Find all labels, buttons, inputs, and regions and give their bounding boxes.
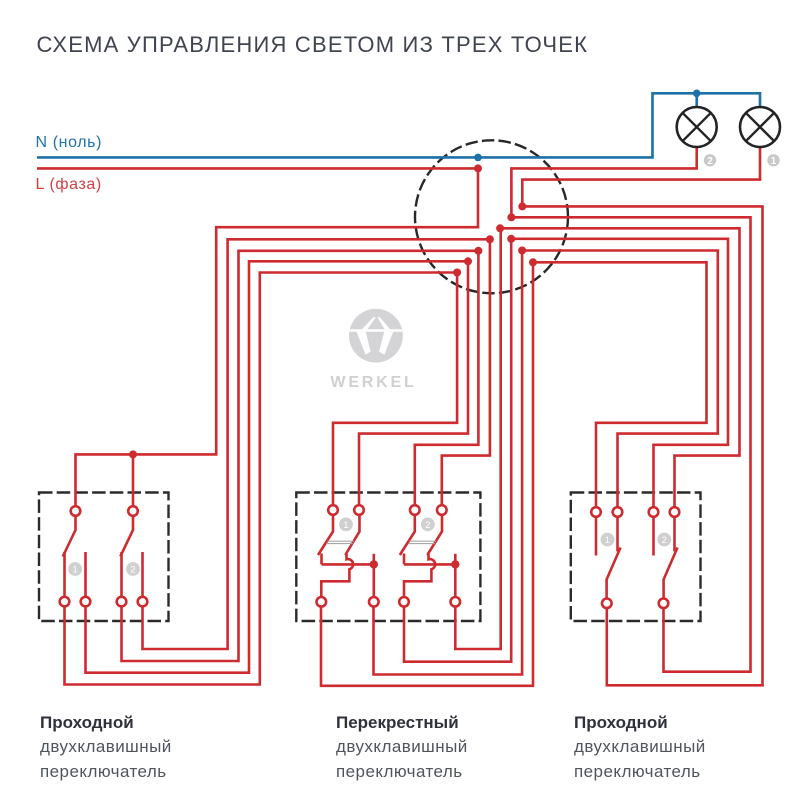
svg-text:2: 2 (130, 565, 135, 575)
svg-text:1: 1 (73, 565, 78, 575)
svg-text:1: 1 (771, 156, 777, 167)
svg-text:1: 1 (605, 535, 610, 545)
svg-text:2: 2 (425, 520, 430, 530)
svg-text:2: 2 (662, 535, 667, 545)
svg-text:WERKEL: WERKEL (330, 374, 416, 391)
svg-text:2: 2 (707, 156, 713, 167)
svg-text:1: 1 (343, 520, 348, 530)
